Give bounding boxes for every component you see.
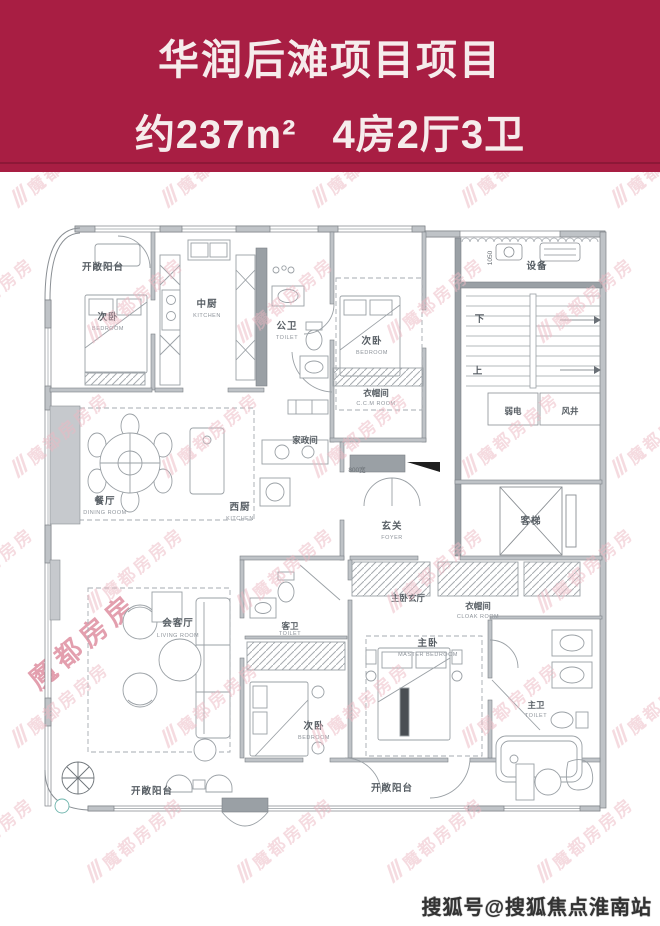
room-label-dining: 餐厅 <box>93 495 115 507</box>
room-label-master: 主卧 <box>417 637 438 649</box>
room-label-master-bath-en: TOILET <box>525 713 547 719</box>
room-label-bedroom-b-en: BEDROOM <box>298 735 330 741</box>
room-label-equipment: 设备 <box>526 260 547 272</box>
room-label-toilet-public: 公卫 <box>276 321 297 332</box>
stairs-up-label: 上 <box>473 365 484 377</box>
dimension-800: 800宽 <box>348 465 366 474</box>
dimension-1050: 1050 <box>487 250 494 265</box>
housekeeping-icons <box>288 400 328 414</box>
room-label-cloak-top-en: C.C.M ROOM <box>356 401 395 407</box>
room-label-housekeeping: 家政间 <box>292 435 318 445</box>
room-label-master-bath: 主卫 <box>527 700 545 710</box>
toilet-guest-icons <box>247 565 345 670</box>
room-label-kitchen-main: 中厨 <box>196 298 217 310</box>
room-label-air-shaft: 风井 <box>561 406 579 416</box>
room-label-kitchen-west: 西厨 <box>229 502 250 513</box>
stairs-down-label: 下 <box>475 314 486 325</box>
room-label-foyer: 玄关 <box>381 520 402 532</box>
room-label-living-en: LIVING ROOM <box>157 633 199 639</box>
room-label-bedroom-tl-en: BEDROOM <box>92 326 124 332</box>
equipment-icons <box>462 238 598 261</box>
page: 华润后滩项目项目 约237m² 4房2厅3卫 <box>0 0 660 926</box>
room-label-master-foyer: 主卧玄厅 <box>391 593 426 603</box>
room-label-bedroom-tr: 次卧 <box>361 335 382 347</box>
area-label: 约237m² <box>135 102 297 160</box>
room-label-toilet-guest-en: TOILET <box>279 631 301 637</box>
room-label-living: 会客厅 <box>162 617 194 629</box>
bed-icon-top-left <box>85 295 147 385</box>
layout-label: 4房2厅3卫 <box>332 102 525 160</box>
room-label-low-voltage: 弱电 <box>504 406 522 416</box>
room-label-balcony-br: 开敞阳台 <box>371 782 413 794</box>
room-label-foyer-en: FOYER <box>381 535 402 541</box>
room-label-balcony-bl: 开敞阳台 <box>131 785 173 797</box>
stairs <box>466 294 601 388</box>
header-divider-line <box>0 162 660 164</box>
bed-icon-master <box>366 648 470 798</box>
structural-piers <box>50 406 80 620</box>
room-label-toilet-public-en: TOILET <box>276 335 298 341</box>
subtitle-row: 约237m² 4房2厅3卫 <box>0 102 660 160</box>
room-label-kitchen-main-en: KITCHEN <box>193 313 221 319</box>
page-title: 华润后滩项目项目 <box>0 26 660 86</box>
bed-icon-bottom <box>250 682 324 756</box>
room-label-kitchen-west-en: KITCHEN <box>226 516 254 522</box>
tree-icon <box>55 762 94 813</box>
room-label-cloak-master-en: CLOAK ROOM <box>457 614 499 620</box>
room-label-toilet-guest: 客卫 <box>280 621 299 631</box>
master-cloak-icons <box>352 562 580 596</box>
room-label-cloak-top: 衣帽间 <box>363 388 389 398</box>
room-label-bedroom-tl: 次卧 <box>97 311 118 323</box>
room-label-cloak-master: 衣帽间 <box>465 601 491 611</box>
room-label-elevator: 客梯 <box>519 515 541 527</box>
room-label-balcony-top: 开敞阳台 <box>82 261 124 273</box>
footer-credit: 搜狐号@搜狐焦点淮南站 <box>421 891 652 920</box>
room-label-dining-en: DINING ROOM <box>83 510 126 516</box>
room-label-bedroom-b: 次卧 <box>303 720 324 732</box>
header-banner: 华润后滩项目项目 约237m² 4房2厅3卫 <box>0 0 660 172</box>
room-label-bedroom-tr-en: BEDROOM <box>356 350 388 356</box>
room-label-master-en: MASTER BEDROOM <box>398 652 458 658</box>
